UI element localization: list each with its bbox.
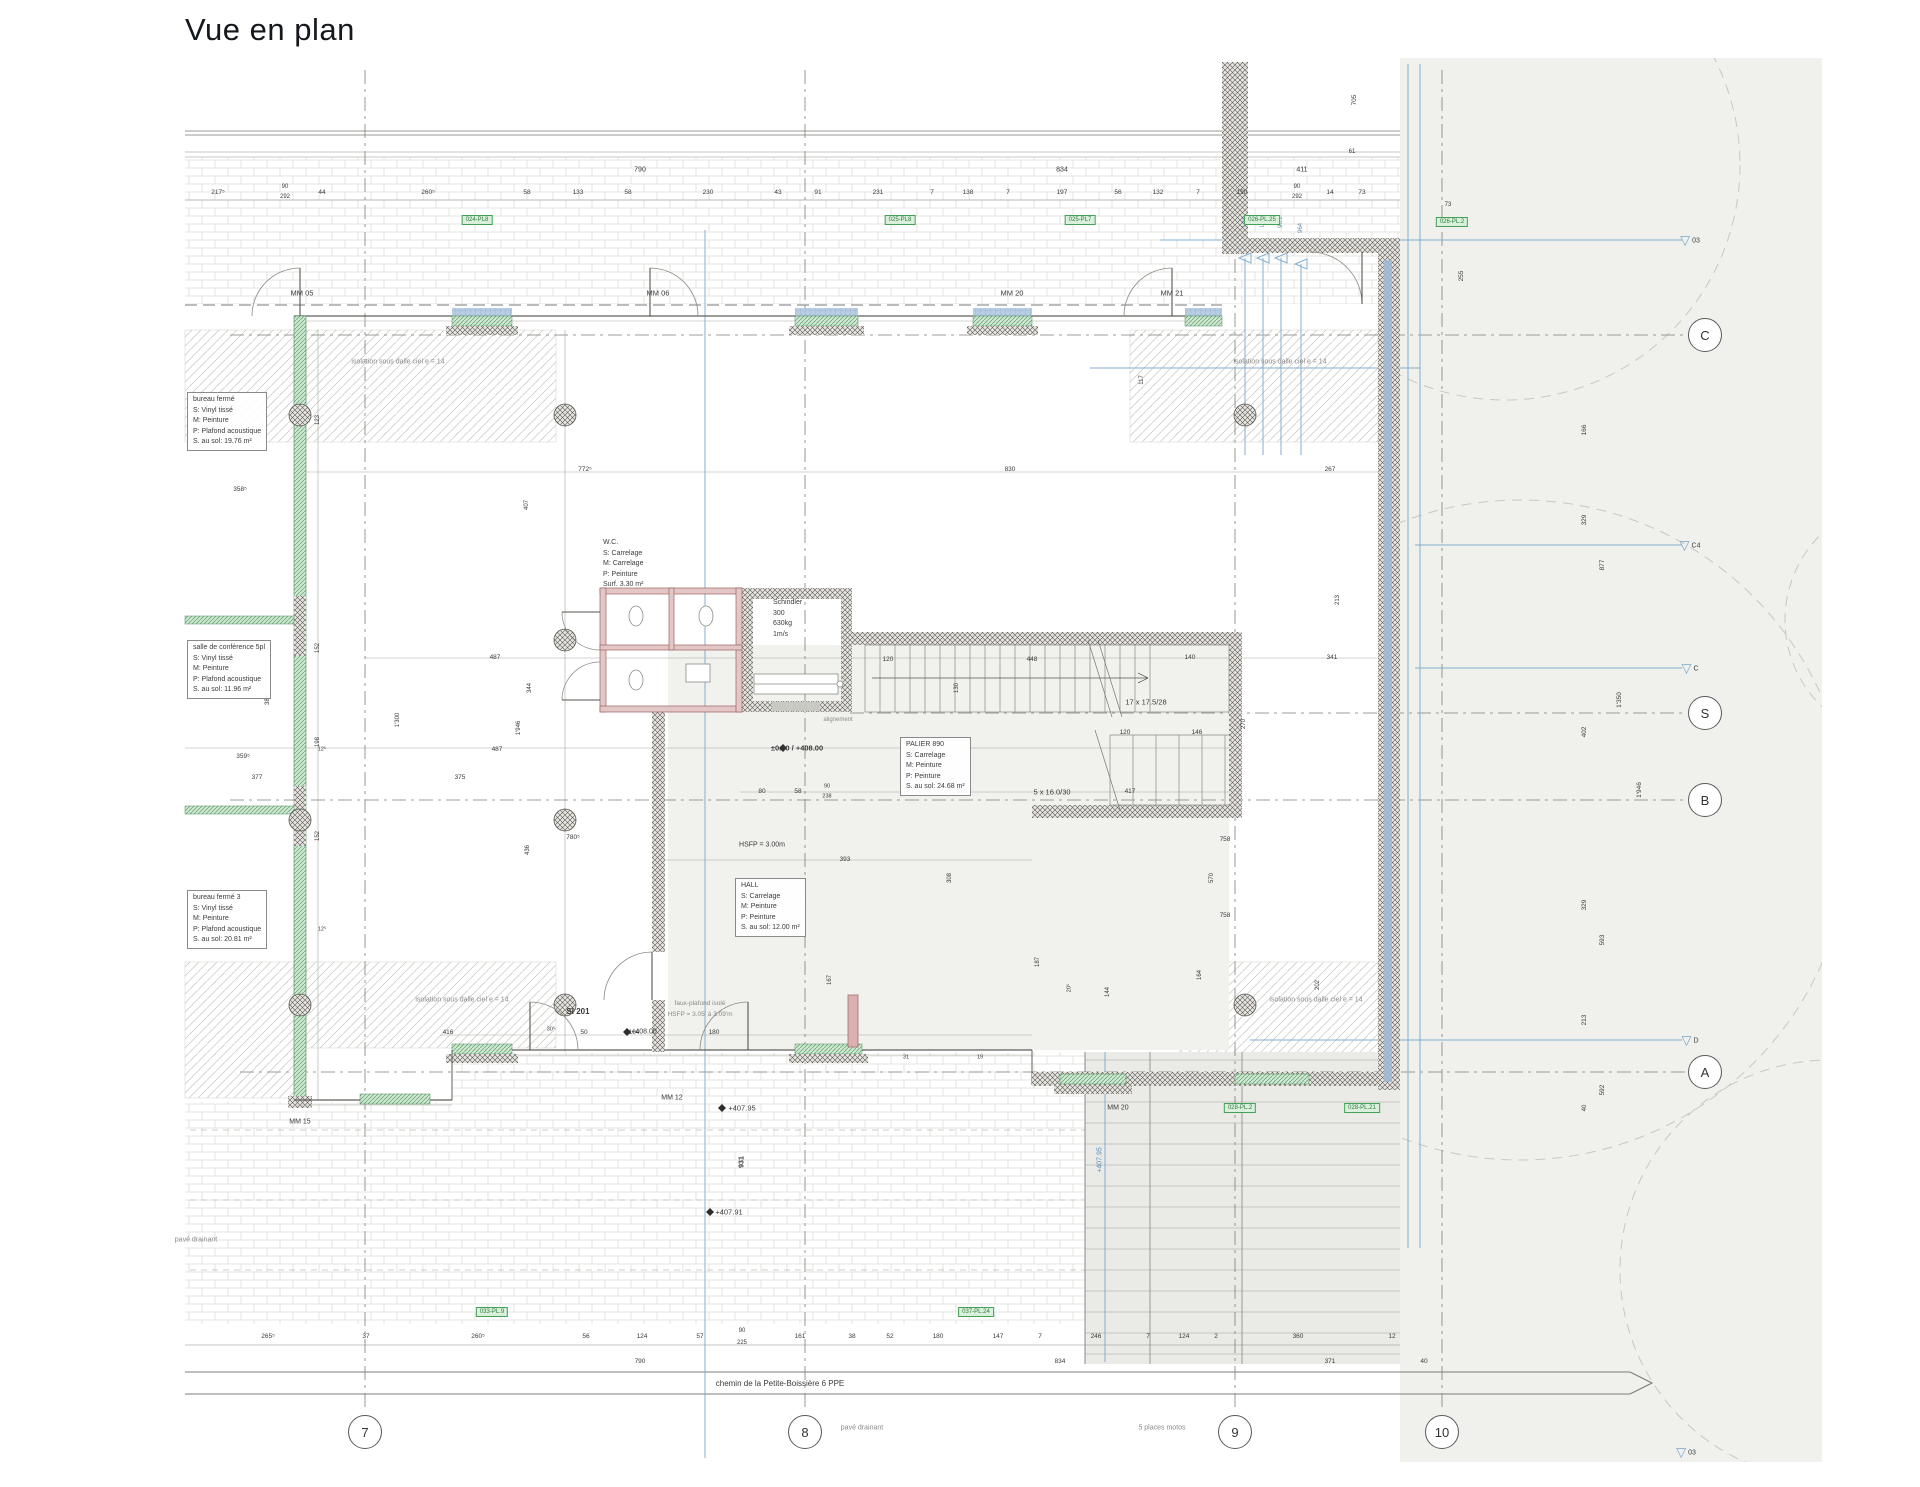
dim-label: 7	[1146, 1334, 1150, 1341]
dim-label: 58	[523, 190, 530, 197]
dim-label: 790	[634, 167, 646, 174]
dim-label: 12⁵	[318, 747, 326, 753]
dim-label: 292	[1292, 194, 1302, 200]
dim-label: 43	[774, 190, 781, 197]
grid-bubble-10: 10	[1425, 1415, 1459, 1449]
dim-label: 417	[1125, 789, 1136, 796]
dim-label: 213	[1582, 1015, 1589, 1026]
dim-label: 138	[963, 190, 974, 197]
room-label-palier: PALIER 890S: CarrelageM: PeintureP: Pein…	[900, 737, 971, 796]
dim-label: 267	[1325, 467, 1336, 474]
plan-ref-badge: 037-PL.24	[958, 1307, 994, 1317]
dim-label: HSFP = 3.00m	[739, 842, 785, 849]
dim-label: 308	[947, 873, 953, 883]
dim-label: 593	[1600, 935, 1607, 946]
dim-label: 772⁵	[578, 467, 592, 474]
dim-label: 231	[873, 190, 884, 197]
dim-label: isolation sous dalle ciel e = 14	[415, 997, 508, 1004]
dim-label: 359⁵	[236, 754, 250, 761]
dim-label: 1'300	[395, 713, 401, 728]
dim-label: 90	[824, 784, 830, 790]
grid-bubble-A: A	[1688, 1055, 1722, 1089]
dim-label: MM 20	[1001, 289, 1024, 297]
dim-label: 217⁵	[211, 190, 225, 197]
plan-ref-badge: 025-PL8	[885, 215, 916, 225]
dim-label: 834	[1056, 167, 1068, 174]
dim-label: 487	[490, 655, 501, 662]
dim-label: 50	[580, 1030, 587, 1037]
dim-label: 964	[1298, 223, 1304, 233]
dim-label: +407.95	[728, 1104, 755, 1112]
dim-label: 31	[903, 1055, 909, 1061]
dim-label: +407.91	[715, 1208, 742, 1216]
grid-triangle-03: ▽03	[1676, 1446, 1696, 1459]
dim-label: 448	[1027, 657, 1038, 664]
dim-label: MM 21	[1161, 289, 1184, 297]
dim-label: MM 20	[1107, 1105, 1128, 1112]
dim-label: 140	[1185, 655, 1196, 662]
dim-label: MM 12	[661, 1095, 682, 1102]
dim-label: 124	[637, 1334, 648, 1341]
room-label-bureau-ferme-3: bureau fermé 3S: Vinyl tisséM: PeintureP…	[187, 890, 267, 949]
dim-label: 58	[794, 789, 801, 796]
dim-label: 152	[315, 831, 321, 841]
dim-label: 30⁵	[547, 1027, 555, 1033]
dim-label: MM 15	[289, 1119, 310, 1126]
dim-label: alignement	[823, 717, 852, 723]
dim-label: 152	[315, 643, 321, 653]
grid-bubble-B: B	[1688, 783, 1722, 817]
dim-label: pavé drainant	[841, 1425, 883, 1432]
dim-label: 341	[1327, 655, 1338, 662]
dim-label: 80	[758, 789, 765, 796]
dim-label: 187	[1035, 957, 1041, 967]
dim-label: +408.00	[631, 1029, 657, 1036]
dim-label: 180	[709, 1030, 720, 1037]
dim-label: 130	[954, 683, 960, 693]
dim-label: 91	[814, 190, 821, 197]
dim-label: 52	[886, 1334, 893, 1341]
plan-ref-badge: 033-PL.9	[476, 1307, 508, 1317]
dim-label: 225	[737, 1340, 747, 1346]
grid-triangle-C4: ▽C4	[1680, 539, 1701, 552]
dim-label: 329	[1582, 900, 1589, 911]
dim-label: 147	[993, 1334, 1004, 1341]
dim-label: 19	[977, 1055, 983, 1061]
dim-label: MM 05	[291, 289, 314, 297]
dim-label: 436	[525, 845, 531, 855]
dim-label: 120	[883, 657, 894, 664]
dim-label: 877	[1600, 560, 1607, 571]
dim-label: 402	[1582, 727, 1589, 738]
dim-label: 790	[635, 1359, 646, 1366]
dim-label: 255	[1459, 271, 1466, 282]
plan-ref-badge: 026-PL.25	[1244, 215, 1280, 225]
dim-label: 38	[848, 1334, 855, 1341]
room-label-wc: W.C.S: CarrelageM: CarrelageP: PeintureS…	[598, 536, 648, 593]
dim-label: 393	[840, 857, 851, 864]
dim-label: ±0.00 / +408.00	[771, 744, 823, 752]
grid-triangle-C: ▽C	[1681, 662, 1698, 675]
dim-label: 1'350	[1617, 692, 1624, 708]
dim-label: 58	[624, 190, 631, 197]
grid-bubble-C: C	[1688, 318, 1722, 352]
dim-label: 133	[573, 190, 584, 197]
plan-ref-badge: 026-PL.2	[1436, 217, 1468, 227]
dim-label: 411	[1296, 167, 1307, 174]
dim-label: 5 x 16.0/30	[1033, 788, 1070, 796]
dim-label: 270	[1241, 719, 1247, 729]
dim-label: 190	[1237, 190, 1248, 197]
dim-label: 758	[1220, 837, 1231, 844]
dim-label: 487	[492, 747, 503, 754]
dim-label: 56	[1114, 190, 1121, 197]
dim-label: chemin de la Petite-Boissière 6 PPE	[716, 1380, 845, 1388]
grid-triangle-03: ▽03	[1680, 234, 1700, 247]
dim-label: 167	[827, 975, 833, 985]
dim-label: 834	[1055, 1359, 1066, 1366]
dim-label: 416	[443, 1030, 454, 1037]
dim-label: isolation sous dalle ciel e = 14	[1269, 997, 1362, 1004]
grid-bubble-7: 7	[348, 1415, 382, 1449]
dim-label: 570	[1209, 873, 1215, 883]
dim-label: 56	[582, 1334, 589, 1341]
dim-label: 124	[1179, 1334, 1190, 1341]
dim-label: 238	[822, 794, 831, 800]
grid-bubble-9: 9	[1218, 1415, 1252, 1449]
dim-label: 592	[1600, 1085, 1607, 1096]
plan-ref-badge: 024-PL8	[462, 215, 493, 225]
floor-plan-canvas: Vue en plan	[0, 0, 1920, 1487]
dim-label: 12	[1388, 1334, 1395, 1341]
dim-label: 260⁵	[421, 190, 435, 197]
dim-label: 246	[1091, 1334, 1102, 1341]
room-label-salle-de-conference: salle de conférence 5plS: Vinyl tisséM: …	[187, 640, 271, 699]
dim-label: 37	[362, 1334, 369, 1341]
dim-label: 705	[1352, 95, 1359, 106]
grid-triangle-D: ▽D	[1681, 1034, 1698, 1047]
dim-label: isolation sous dalle ciel e = 14	[1233, 359, 1326, 366]
room-label-bureau-ferme: bureau ferméS: Vinyl tisséM: PeintureP: …	[187, 392, 267, 451]
dim-label: 146	[1192, 730, 1203, 737]
dim-label: 90	[282, 184, 289, 190]
dim-label: 197	[1057, 190, 1068, 197]
dim-label: 166	[1582, 425, 1589, 436]
dim-label: HSFP = 3.05' à 3.09'm	[667, 1012, 732, 1019]
dim-label: 360	[1293, 1334, 1304, 1341]
dim-label: 7	[1006, 190, 1010, 197]
dim-label: 120	[1120, 730, 1131, 737]
dim-label: +407.95	[1097, 1147, 1104, 1173]
dim-label: 180	[933, 1334, 944, 1341]
annotation-overlay: 79083441161217⁵9029244260⁵58133582304391…	[0, 0, 1920, 1487]
dim-label: 407	[524, 500, 530, 510]
dim-label: 358⁵	[233, 487, 247, 494]
dim-label: 7	[1038, 1334, 1042, 1341]
room-label-ascenseur: Schindler300630kg1m/s	[768, 596, 807, 642]
dim-label: 780⁵	[566, 835, 580, 842]
dim-label: 73	[1445, 202, 1452, 208]
dim-label: 117	[1139, 375, 1145, 385]
dim-label: 2	[1214, 1334, 1218, 1341]
room-label-hall: HALLS: CarrelageM: PeintureP: PeintureS.…	[735, 878, 806, 937]
dim-label: 7	[1196, 190, 1200, 197]
dim-label: 758	[1220, 913, 1231, 920]
dim-label: 931	[739, 1156, 746, 1168]
dim-label: MM 06	[647, 289, 670, 297]
dim-label: 144	[1105, 987, 1111, 997]
dim-label: 344	[527, 683, 533, 693]
dim-label: 57	[696, 1334, 703, 1341]
dim-label: 61	[1349, 149, 1356, 155]
dim-label: isolation sous dalle ciel e = 14	[351, 359, 444, 366]
dim-label: 17 x 17.5/28	[1125, 698, 1166, 706]
dim-label: 292	[280, 194, 290, 200]
plan-ref-badge: 028-PL.21	[1344, 1103, 1380, 1113]
dim-label: 375	[455, 775, 466, 782]
dim-label: 260⁵	[471, 1334, 485, 1341]
dim-label: 329	[1582, 515, 1589, 526]
grid-bubble-S: S	[1688, 696, 1722, 730]
dim-label: 44	[318, 190, 325, 197]
dim-label: 377	[252, 775, 263, 782]
dim-label: 1'946	[516, 721, 522, 736]
dim-label: 213	[1335, 595, 1341, 605]
dim-label: 90	[1294, 184, 1301, 190]
dim-label: 202	[1315, 980, 1321, 990]
dim-label: 1'946	[1637, 782, 1644, 798]
dim-label: 230	[703, 190, 714, 197]
plan-ref-badge: 028-PL.2	[1224, 1103, 1256, 1113]
dim-label: 5 places motos	[1138, 1425, 1185, 1432]
dim-label: 132	[1153, 190, 1164, 197]
plan-ref-badge: 025-PL7	[1065, 215, 1096, 225]
dim-label: 40	[1582, 1105, 1588, 1112]
dim-label: SI 201	[566, 1008, 589, 1016]
dim-label: 20⁵	[1067, 984, 1073, 992]
dim-label: 265⁵	[261, 1334, 275, 1341]
dim-label: pavé drainant	[175, 1237, 217, 1244]
dim-label: 7	[930, 190, 934, 197]
dim-label: 90	[739, 1328, 746, 1334]
dim-label: 371	[1325, 1359, 1336, 1366]
dim-label: 12⁵	[318, 927, 326, 933]
dim-label: 161	[795, 1334, 806, 1341]
dim-label: 73	[1358, 190, 1365, 197]
dim-label: 40	[1420, 1359, 1427, 1366]
dim-label: 14	[1326, 190, 1333, 197]
dim-label: 123	[315, 415, 321, 425]
dim-label: faux-plafond isolé	[675, 1001, 726, 1008]
dim-label: 164	[1197, 970, 1203, 980]
grid-bubble-8: 8	[788, 1415, 822, 1449]
dim-label: 830	[1005, 467, 1016, 474]
